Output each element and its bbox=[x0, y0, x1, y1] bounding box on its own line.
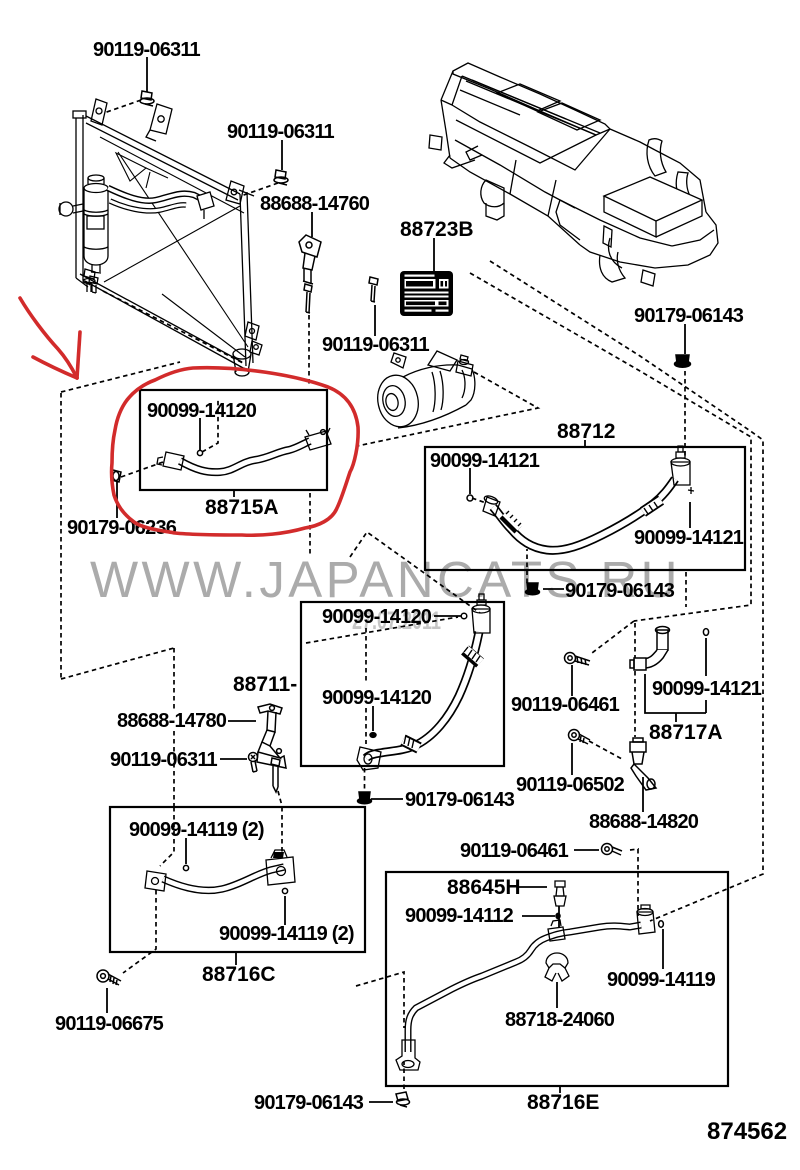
svg-text:90179-06143: 90179-06143 bbox=[634, 305, 744, 327]
svg-text:88712: 88712 bbox=[557, 420, 615, 443]
svg-text:90099-14119 (2): 90099-14119 (2) bbox=[129, 819, 264, 841]
svg-text:88688-14760: 88688-14760 bbox=[260, 193, 370, 215]
svg-text:874562: 874562 bbox=[707, 1118, 787, 1145]
svg-text:90099-14120: 90099-14120 bbox=[322, 606, 432, 628]
svg-text:90119-06311: 90119-06311 bbox=[322, 334, 430, 356]
svg-text:90099-14121: 90099-14121 bbox=[634, 527, 744, 549]
svg-text:90099-14120: 90099-14120 bbox=[147, 400, 257, 422]
svg-text:90119-06311: 90119-06311 bbox=[227, 121, 335, 143]
svg-text:90179-06143: 90179-06143 bbox=[565, 580, 675, 602]
svg-text:88645H: 88645H bbox=[447, 876, 521, 899]
svg-text:90099-14120: 90099-14120 bbox=[322, 687, 432, 709]
svg-text:88716E: 88716E bbox=[527, 1091, 599, 1114]
svg-text:88688-14820: 88688-14820 bbox=[589, 811, 699, 833]
svg-text:88717A: 88717A bbox=[649, 721, 723, 744]
svg-text:90119-06461: 90119-06461 bbox=[511, 694, 620, 716]
svg-text:88716C: 88716C bbox=[202, 963, 276, 986]
svg-text:90119-06461: 90119-06461 bbox=[460, 840, 569, 862]
svg-text:90099-14112: 90099-14112 bbox=[405, 905, 514, 927]
svg-text:90179-06143: 90179-06143 bbox=[405, 789, 515, 811]
svg-text:90179-06143: 90179-06143 bbox=[254, 1092, 364, 1114]
svg-text:88715A: 88715A bbox=[205, 496, 279, 519]
svg-text:88718-24060: 88718-24060 bbox=[505, 1009, 615, 1031]
svg-text:90099-14119 (2): 90099-14119 (2) bbox=[219, 923, 354, 945]
svg-text:90099-14121: 90099-14121 bbox=[652, 678, 762, 700]
svg-text:88723B: 88723B bbox=[400, 218, 474, 241]
svg-text:88688-14780: 88688-14780 bbox=[117, 710, 227, 732]
svg-text:90099-14119: 90099-14119 bbox=[607, 969, 716, 991]
svg-text:90119-06311: 90119-06311 bbox=[110, 749, 218, 771]
svg-text:90099-14121: 90099-14121 bbox=[430, 450, 540, 472]
svg-text:90119-06502: 90119-06502 bbox=[516, 774, 625, 796]
svg-text:90119-06675: 90119-06675 bbox=[55, 1013, 164, 1035]
svg-text:90119-06311: 90119-06311 bbox=[93, 39, 201, 61]
svg-text:88711-: 88711- bbox=[233, 673, 297, 696]
svg-text:90179-06236: 90179-06236 bbox=[67, 517, 177, 539]
